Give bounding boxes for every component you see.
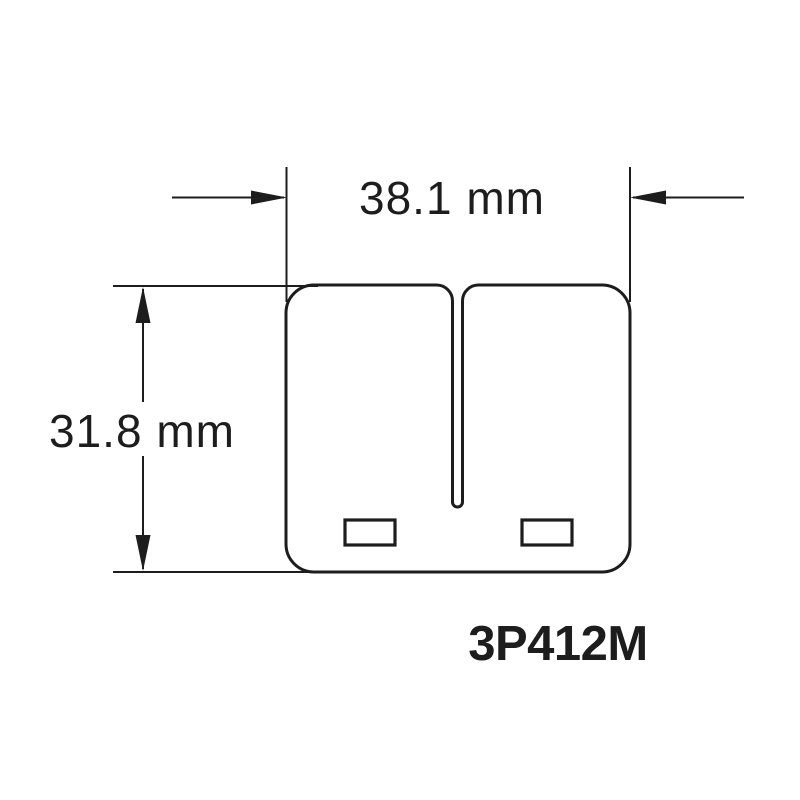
width-dimension-label: 38.1 mm — [359, 172, 545, 224]
height-dimension: 31.8 mm — [49, 286, 318, 572]
left-arrow-icon — [630, 191, 666, 205]
reed-petal-outline — [286, 285, 630, 572]
right-arrow-icon — [251, 191, 287, 205]
reed-petal-dimension-drawing: 38.1 mm 31.8 mm 3P412M — [0, 0, 800, 800]
left-rectangle-marking — [345, 520, 395, 545]
up-arrow-icon — [136, 287, 151, 323]
part-number-label: 3P412M — [468, 617, 648, 671]
height-dimension-label: 31.8 mm — [49, 405, 235, 457]
technical-drawing-canvas: 38.1 mm 31.8 mm 3P412M — [0, 0, 800, 800]
down-arrow-icon — [136, 535, 151, 571]
width-dimension: 38.1 mm — [172, 167, 744, 302]
right-rectangle-marking — [522, 520, 572, 545]
